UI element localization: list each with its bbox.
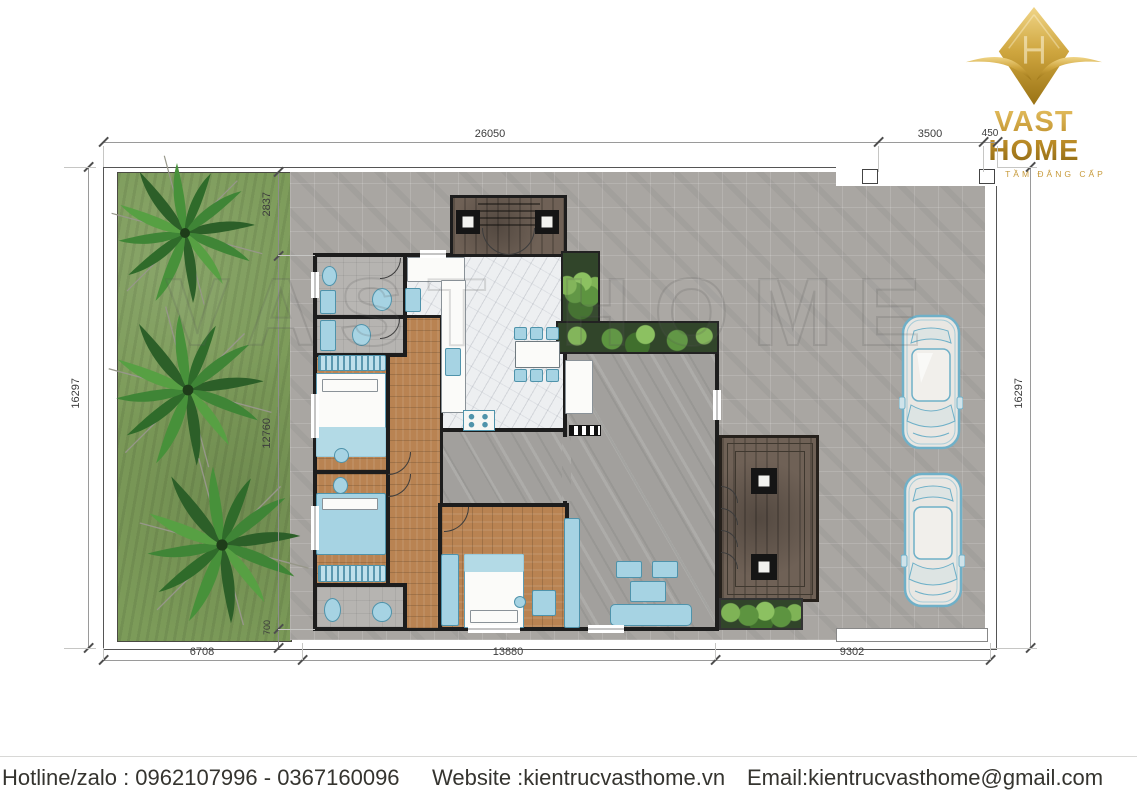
stool [514,596,526,608]
dimension-line-top [103,142,997,143]
bathtub [320,320,336,351]
hotline-text: Hotline/zalo : 0962107996 - 0367160096 [2,765,400,791]
entry-column [456,210,480,234]
dim-inner-house: 12760 [261,418,273,449]
pillow [322,498,378,510]
dining-chair [546,369,559,382]
dimension-line-inner [278,172,279,648]
entry-steps [478,200,540,226]
dimension-line-right [1030,167,1031,648]
window [311,506,319,550]
top-gate-opening [836,167,997,186]
car-icon [901,471,965,609]
living-room-extension [438,428,567,508]
logo-diamond-icon [959,4,1109,108]
toilet [352,324,371,346]
sideboard [565,360,593,414]
washer [405,288,421,312]
porch-column [751,468,777,494]
car-icon [899,313,963,451]
window [420,250,446,258]
dim-bottom-house: 13880 [478,646,538,658]
shoe-rack [569,425,601,436]
kitchen-counter [441,280,466,413]
tv-console [564,518,580,628]
dining-chair [514,327,527,340]
blanket [316,427,386,457]
palm-trees-icon [100,155,320,655]
sink [372,602,392,622]
bottom-gate-opening [836,628,988,642]
vast-home-logo: VAST HOME XỨNG TẦM ĐẲNG CẤP [945,4,1123,179]
desk [532,590,556,616]
cooktop [463,410,495,431]
planter-strip-horizontal [556,321,719,354]
gate-post [862,169,878,184]
contact-bar: Hotline/zalo : 0962107996 - 0367160096 W… [0,756,1137,801]
window [588,625,624,633]
pillow [322,379,378,392]
dim-bottom-left: 6708 [172,646,232,658]
window [311,272,319,298]
kitchen-counter [407,257,465,282]
gate-post [979,169,995,184]
wall-opening [562,437,571,501]
armchair [616,561,642,578]
window [713,390,721,420]
window [468,625,520,633]
dining-table [515,341,560,368]
sofa [610,604,692,626]
email-text: Email:kientrucvasthome@gmail.com [747,765,1103,791]
dining-chair [530,369,543,382]
chair [334,448,349,463]
wardrobe [318,565,386,582]
wardrobe [318,355,386,371]
dim-top-total: 26050 [450,128,530,140]
armchair [652,561,678,578]
chair [333,477,348,494]
dim-top-corner: 450 [973,128,1007,139]
entry-column [535,210,559,234]
planter-strip-vertical [561,251,600,327]
bathtub [320,290,336,314]
coffee-table [630,581,666,602]
kitchen-sink [445,348,461,376]
dimension-line-bottom [103,660,990,661]
toilet [372,288,392,311]
blanket [464,554,524,572]
dining-chair [530,327,543,340]
porch-planter [719,598,803,630]
dim-right-height: 16297 [1013,378,1025,409]
dim-inner-top: 2837 [261,192,273,216]
porch-column [751,554,777,580]
dimension-line-left [88,167,89,648]
wardrobe [441,554,459,626]
window [311,394,319,438]
dim-bottom-right: 9302 [822,646,882,658]
pillow [470,610,518,623]
dining-chair [514,369,527,382]
sink [322,266,337,286]
logo-title: VAST HOME [945,108,1123,166]
dim-left-height: 16297 [70,378,82,409]
dim-top-gate: 3500 [905,128,955,140]
dining-chair [546,327,559,340]
dim-inner-bottom: 700 [262,620,272,635]
website-text: Website :kientrucvasthome.vn [432,765,725,791]
toilet [324,598,341,622]
